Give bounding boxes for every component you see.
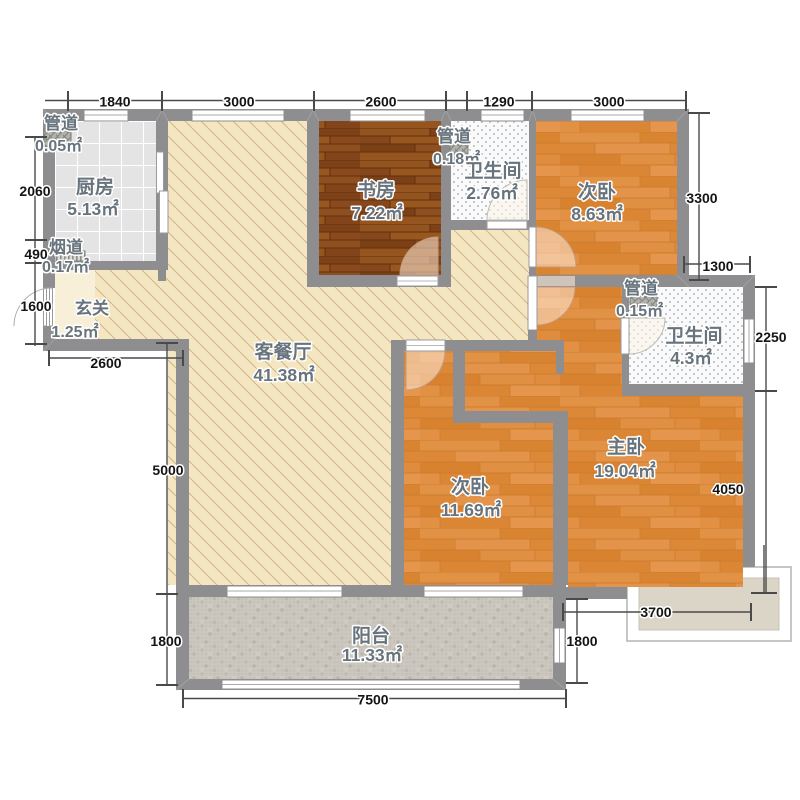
svg-text:书房: 书房: [357, 178, 395, 201]
svg-text:3000: 3000: [593, 94, 624, 110]
svg-text:1800: 1800: [566, 633, 597, 649]
svg-text:2600: 2600: [90, 355, 121, 371]
svg-text:主卧: 主卧: [607, 436, 645, 458]
svg-text:客餐厅: 客餐厅: [254, 340, 311, 363]
svg-text:1290: 1290: [483, 94, 514, 110]
svg-text:5000: 5000: [152, 462, 183, 478]
svg-text:1.25㎡: 1.25㎡: [51, 322, 98, 341]
svg-text:5.13㎡: 5.13㎡: [67, 199, 119, 219]
svg-text:4050: 4050: [712, 481, 743, 497]
svg-text:0.15㎡: 0.15㎡: [616, 301, 663, 320]
svg-text:11.33㎡: 11.33㎡: [342, 645, 403, 665]
svg-text:4.3㎡: 4.3㎡: [670, 348, 712, 368]
svg-text:7500: 7500: [357, 692, 388, 708]
svg-text:0.17㎡: 0.17㎡: [42, 257, 89, 276]
svg-text:41.38㎡: 41.38㎡: [253, 365, 315, 385]
svg-text:1840: 1840: [99, 94, 130, 110]
svg-text:7.22㎡: 7.22㎡: [351, 203, 403, 223]
svg-text:厨房: 厨房: [76, 175, 114, 198]
svg-text:管道: 管道: [44, 113, 78, 133]
svg-text:卫生间: 卫生间: [464, 159, 521, 182]
svg-text:2.76㎡: 2.76㎡: [466, 183, 518, 203]
svg-text:管道: 管道: [437, 126, 471, 146]
svg-text:1800: 1800: [150, 633, 181, 649]
svg-text:3700: 3700: [640, 604, 671, 620]
svg-text:3000: 3000: [223, 94, 254, 110]
svg-text:管道: 管道: [624, 278, 658, 298]
svg-text:1600: 1600: [20, 298, 51, 314]
svg-text:2600: 2600: [365, 94, 396, 110]
svg-text:0.05㎡: 0.05㎡: [35, 136, 82, 155]
svg-text:1300: 1300: [702, 258, 733, 274]
svg-text:19.04㎡: 19.04㎡: [594, 461, 656, 481]
svg-text:卫生间: 卫生间: [665, 324, 722, 347]
svg-text:2250: 2250: [755, 329, 786, 345]
svg-text:11.69㎡: 11.69㎡: [441, 500, 502, 520]
svg-text:次卧: 次卧: [451, 475, 489, 498]
svg-text:玄关: 玄关: [75, 298, 109, 318]
svg-text:烟道: 烟道: [49, 237, 83, 257]
svg-text:2060: 2060: [19, 183, 50, 199]
svg-text:3300: 3300: [686, 190, 717, 206]
svg-text:阳台: 阳台: [352, 624, 390, 647]
svg-text:8.63㎡: 8.63㎡: [571, 204, 623, 224]
svg-text:次卧: 次卧: [578, 180, 616, 203]
